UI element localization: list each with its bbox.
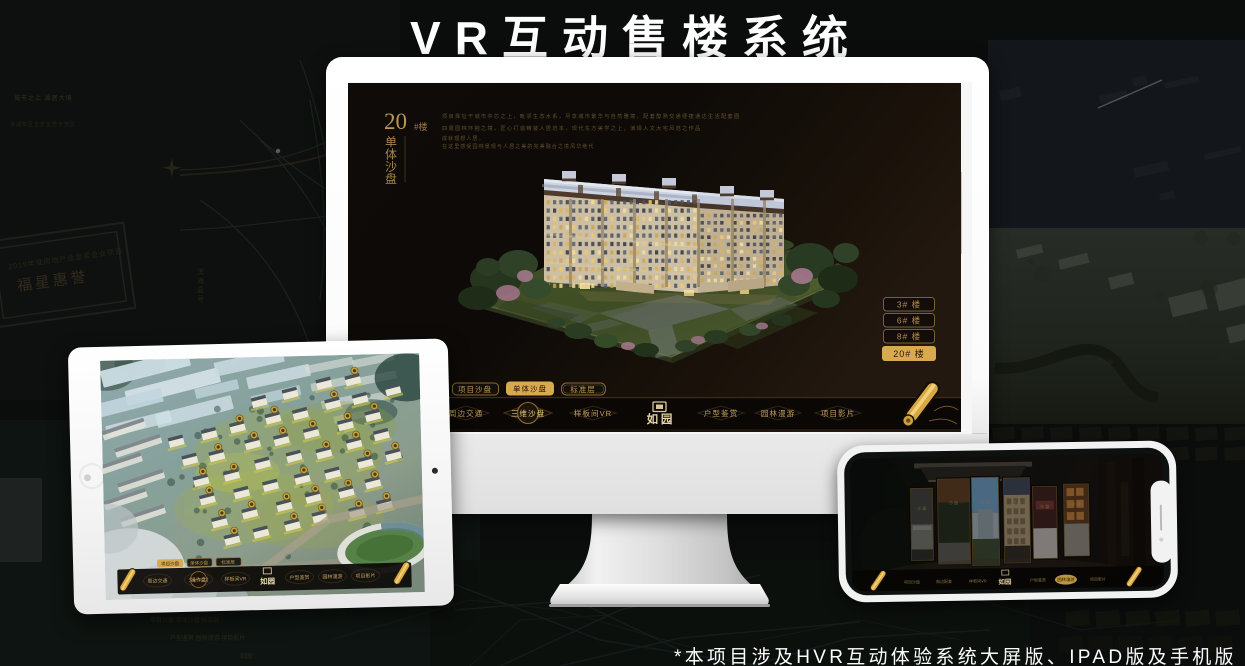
svg-text:如 园: 如 园 (647, 412, 673, 426)
svg-text:样板间VR: 样板间VR (224, 575, 246, 583)
svg-text:项目择址于城市中芯之上，毗邻生态水系，尽享城市繁华与自然雅境: 项目择址于城市中芯之上，毗邻生态水系，尽享城市繁华与自然雅境，配套醇熟交通便捷通… (442, 112, 740, 120)
svg-text:8# 楼: 8# 楼 (897, 332, 921, 342)
svg-text:成就理想人居。: 成就理想人居。 (442, 135, 485, 142)
svg-text:户型鉴赏: 户型鉴赏 (1030, 576, 1046, 582)
svg-text:20# 楼: 20# 楼 (893, 348, 925, 359)
svg-text:操作盘: 操作盘 (191, 576, 206, 583)
svg-text:园林漫游: 园林漫游 (761, 408, 795, 418)
svg-text:户型鉴赏 园林漫游 项目影片: 户型鉴赏 园林漫游 项目影片 (170, 634, 245, 642)
svg-text:户型鉴赏: 户型鉴赏 (704, 408, 738, 418)
svg-text:3# 楼: 3# 楼 (897, 300, 921, 310)
svg-text:#楼: #楼 (414, 121, 428, 132)
svg-text:滨海壹号: 滨海壹号 (197, 267, 205, 304)
svg-text:20: 20 (384, 109, 407, 134)
svg-text:单体沙盘: 单体沙盘 (385, 135, 397, 186)
svg-text:项目影片: 项目影片 (821, 408, 855, 418)
svg-text:项目影片: 项目影片 (355, 572, 375, 579)
svg-text:周边配套: 周边配套 (936, 578, 952, 584)
svg-text:项目沙盘: 项目沙盘 (904, 578, 920, 584)
svg-text:单体沙盘: 单体沙盘 (513, 384, 547, 394)
svg-text:样板间VR: 样板间VR (574, 408, 612, 418)
svg-text:在这里感受园林景观与人居之美的完美融合之境风华绝代: 在这里感受园林景观与人居之美的完美融合之境风华绝代 (442, 143, 595, 150)
svg-text:项目影片: 项目影片 (1090, 575, 1106, 581)
svg-text:周边交通: 周边交通 (449, 408, 483, 418)
svg-text:样板间VR: 样板间VR (969, 577, 987, 583)
svg-text:标准层: 标准层 (570, 384, 596, 394)
svg-text:滨湖新区生态宜居示范区: 滨湖新区生态宜居示范区 (10, 121, 76, 128)
svg-text:城市之上 湖居大境: 城市之上 湖居大境 (14, 94, 73, 102)
svg-text:四周园林环抱之境，匠心打造精装人居范本，现代东方美学之上，演: 四周园林环抱之境，匠心打造精装人居范本，现代东方美学之上，演绎人文大宅风范之作品 (442, 124, 702, 132)
svg-text:如园: 如园 (260, 576, 276, 586)
svg-text:如园: 如园 (998, 577, 1012, 586)
svg-text:户型鉴赏: 户型鉴赏 (289, 574, 309, 581)
svg-text:项目沙盘 单体沙盘 标准层: 项目沙盘 单体沙盘 标准层 (150, 616, 219, 624)
svg-text:三维沙盘: 三维沙盘 (511, 408, 545, 418)
svg-text:园林漫游: 园林漫游 (322, 573, 342, 580)
svg-text:如园: 如园 (240, 652, 252, 660)
svg-text:项目沙盘: 项目沙盘 (458, 384, 492, 394)
svg-text:6# 楼: 6# 楼 (897, 316, 921, 326)
svg-text:周边交通: 周边交通 (147, 577, 167, 584)
